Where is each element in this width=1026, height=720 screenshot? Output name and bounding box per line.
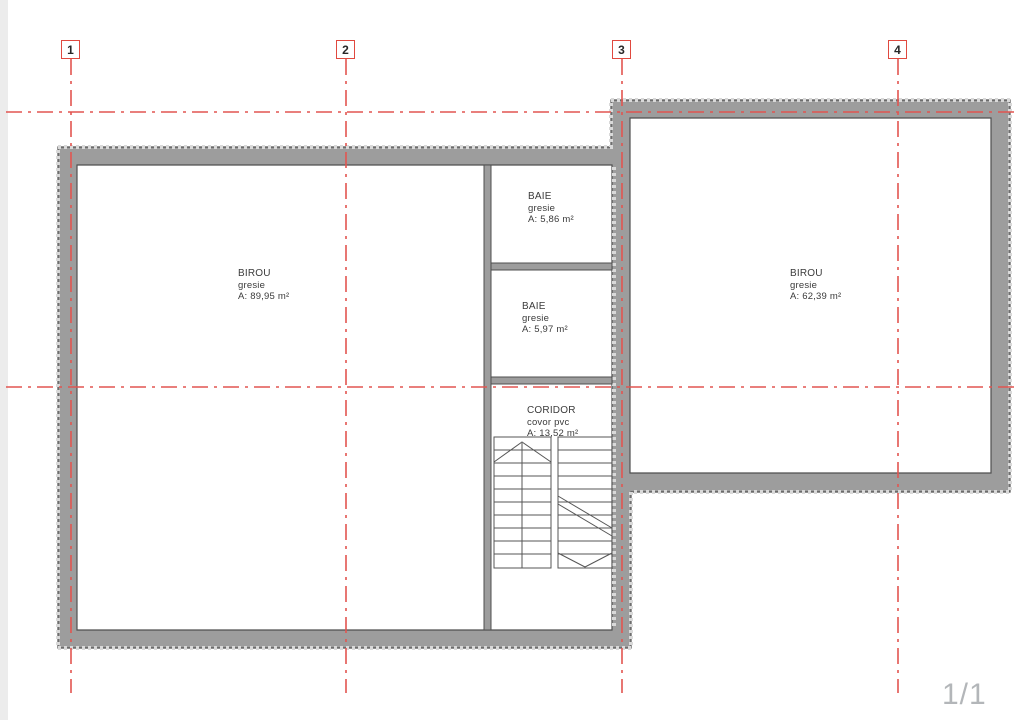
grid-marker-1: 1 (61, 40, 80, 59)
room-finish: gresie (528, 203, 574, 215)
room-label-baie-top: BAIE gresie A: 5,86 m² (528, 191, 574, 226)
room-label-baie-bottom: BAIE gresie A: 5,97 m² (522, 301, 568, 336)
room-name: BAIE (528, 191, 574, 203)
drawing-viewport: 1 2 3 4 BIROU gresie A: 89,95 m² BAIE gr… (0, 0, 1026, 720)
room-name: CORIDOR (527, 405, 578, 417)
grid-marker-4: 4 (888, 40, 907, 59)
room-finish: gresie (790, 280, 841, 292)
room-label-coridor: CORIDOR covor pvc A: 13,52 m² (527, 405, 578, 440)
wall-hatch-outer (58, 100, 1010, 648)
grid-marker-2: 2 (336, 40, 355, 59)
grid-marker-3: 3 (612, 40, 631, 59)
room-area: A: 5,97 m² (522, 324, 568, 336)
interior-partitions (484, 165, 612, 630)
room-name: BIROU (238, 268, 289, 280)
room-label-birou-left: BIROU gresie A: 89,95 m² (238, 268, 289, 303)
room-name: BIROU (790, 268, 841, 280)
room-finish: gresie (522, 313, 568, 325)
room-area: A: 5,86 m² (528, 214, 574, 226)
page-indicator: 1/1 (942, 678, 987, 712)
floor-plan (0, 0, 1026, 720)
room-area: A: 62,39 m² (790, 291, 841, 303)
room-finish: covor pvc (527, 417, 578, 429)
room-area: A: 13,52 m² (527, 428, 578, 440)
room-finish: gresie (238, 280, 289, 292)
exterior-walls (58, 100, 1010, 648)
room-area: A: 89,95 m² (238, 291, 289, 303)
room-label-birou-right: BIROU gresie A: 62,39 m² (790, 268, 841, 303)
room-name: BAIE (522, 301, 568, 313)
staircase (494, 437, 612, 568)
